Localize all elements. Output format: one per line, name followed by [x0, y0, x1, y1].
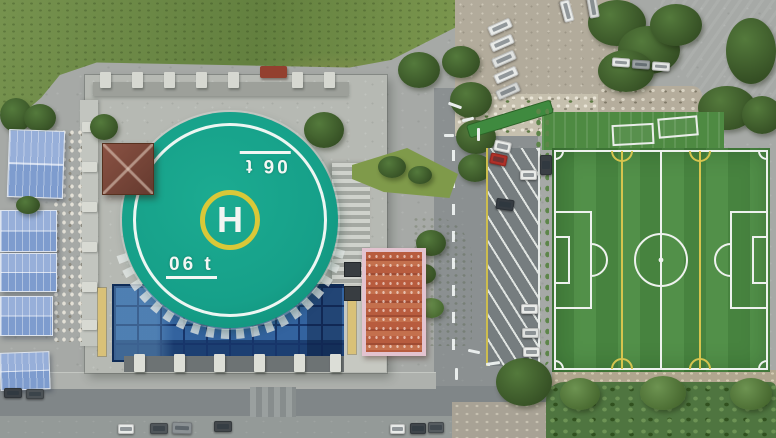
blue-warehouse-roof: [0, 253, 57, 292]
blue-warehouse-roof: [0, 296, 53, 336]
parapet-post: [100, 72, 111, 88]
parapet-post: [292, 72, 303, 88]
field-line-markings: [552, 148, 770, 372]
tree-canopy: [408, 166, 432, 184]
tree-canopy: [726, 18, 776, 84]
car-dark: [428, 422, 444, 433]
car-white: [652, 61, 671, 71]
tree-canopy: [398, 52, 440, 88]
blue-warehouse-roof: [7, 129, 65, 199]
parapet-post: [324, 72, 335, 88]
car-white: [612, 57, 631, 67]
car-white: [523, 347, 540, 357]
front-colonnade: [124, 356, 344, 372]
parapet-post: [82, 202, 97, 212]
tree-canopy: [450, 82, 492, 118]
blue-warehouse-roof: [0, 210, 57, 252]
dirt-patch-bottom: [452, 402, 548, 438]
parapet-post: [196, 72, 207, 88]
aerial-photo-scene: H 06 t 06 t: [0, 0, 776, 438]
parapet-post: [82, 282, 97, 292]
shrub: [730, 378, 772, 410]
car-dark: [540, 155, 552, 175]
rooftop-equipment: [344, 286, 361, 301]
car-dark: [214, 421, 232, 432]
sidewalk: [0, 372, 436, 389]
corner-arc: [555, 151, 563, 159]
paved-crossing: [250, 387, 296, 417]
glass-dark-section: [307, 286, 342, 356]
corner-arc: [555, 361, 563, 369]
car-white: [521, 304, 538, 314]
shrub: [560, 378, 600, 410]
tree-canopy: [742, 96, 776, 134]
car-white: [520, 170, 537, 180]
helipad-center-ring: [200, 190, 260, 250]
facade-pier: [330, 354, 341, 372]
parapet-post: [82, 162, 97, 172]
car-dark: [495, 198, 514, 211]
car-dark: [150, 423, 168, 434]
car-white: [390, 424, 405, 434]
car-gray: [632, 59, 651, 69]
rooftop-structure-outline: [657, 115, 699, 138]
parapet-post: [82, 320, 97, 330]
tree-canopy: [650, 4, 702, 46]
penalty-box-left: [555, 212, 591, 308]
car-white: [118, 424, 134, 434]
yellow-wall-strip: [98, 288, 106, 356]
facade-pier: [174, 354, 185, 372]
car-dark: [410, 423, 426, 434]
parapet-post: [82, 242, 97, 252]
green-apron-north-of-field: [542, 112, 724, 150]
road-marking: [477, 128, 480, 141]
rooftop-planter-tree: [304, 112, 344, 148]
center-spot: [659, 258, 664, 263]
rooftop-planter-tree: [90, 114, 118, 140]
parapet-post: [164, 72, 175, 88]
facade-pier: [254, 354, 265, 372]
helipad: H 06 t 06 t: [122, 112, 338, 328]
parapet-post: [228, 72, 239, 88]
corner-arc: [759, 151, 767, 159]
road-marking: [444, 134, 454, 137]
large-round-tree: [496, 358, 552, 406]
tiled-structure-under-construction: [362, 248, 426, 356]
helipad-weight-marking-bottom: 06 t: [166, 254, 217, 276]
goal-area-left: [555, 237, 569, 283]
corner-arc: [759, 361, 767, 369]
rooftop-pavilion-hip-roof: [102, 143, 154, 195]
car-white: [522, 328, 539, 338]
parapet-post: [132, 72, 143, 88]
penalty-box-right: [731, 212, 767, 308]
soccer-field: [552, 148, 770, 372]
road-marking: [455, 368, 458, 380]
penalty-arc-right: [715, 244, 731, 276]
penalty-arc-left: [591, 244, 607, 276]
rooftop-structure-outline: [611, 123, 654, 146]
tree-canopy: [16, 196, 40, 214]
facade-pier: [214, 354, 225, 372]
tree-canopy: [598, 50, 654, 92]
facade-pier: [294, 354, 305, 372]
helipad-weight-marking-top: 06 t: [240, 154, 291, 176]
car-dark: [26, 389, 44, 399]
shrub: [640, 376, 686, 410]
goal-area-right: [753, 237, 767, 283]
car-gray: [172, 422, 192, 435]
blue-warehouse-roof: [0, 351, 51, 391]
tree-canopy: [442, 46, 480, 78]
car-dark: [4, 388, 22, 398]
red-rooftop-object: [260, 66, 287, 78]
rooftop-equipment: [344, 262, 361, 277]
facade-pier: [134, 354, 145, 372]
tree-canopy: [378, 156, 406, 178]
